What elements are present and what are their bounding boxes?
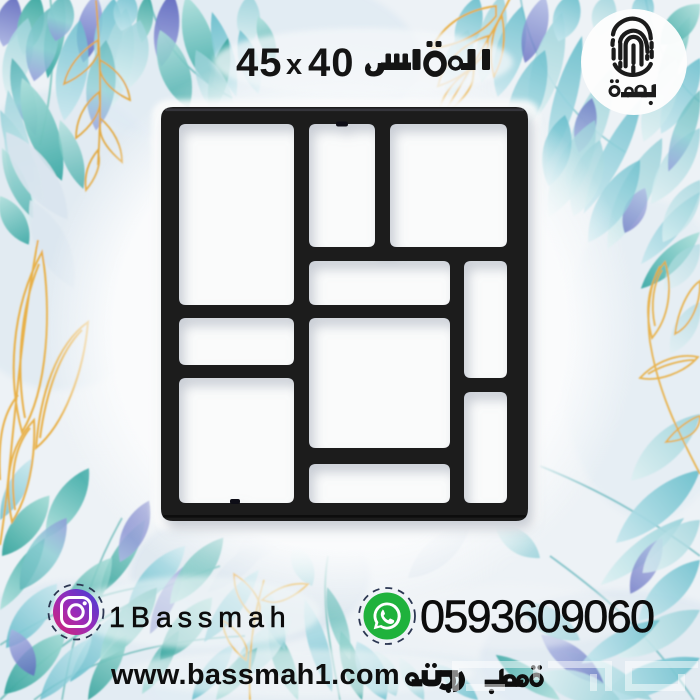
svg-text:1Bassmah: 1Bassmah [109,602,292,634]
svg-text:www.bassmah1.com: www.bassmah1.com [110,659,400,691]
svg-text:0593609060: 0593609060 [420,591,654,642]
svg-text:45: 45 [236,41,283,85]
svg-text:40: 40 [308,41,355,85]
svg-text:x: x [286,49,302,81]
